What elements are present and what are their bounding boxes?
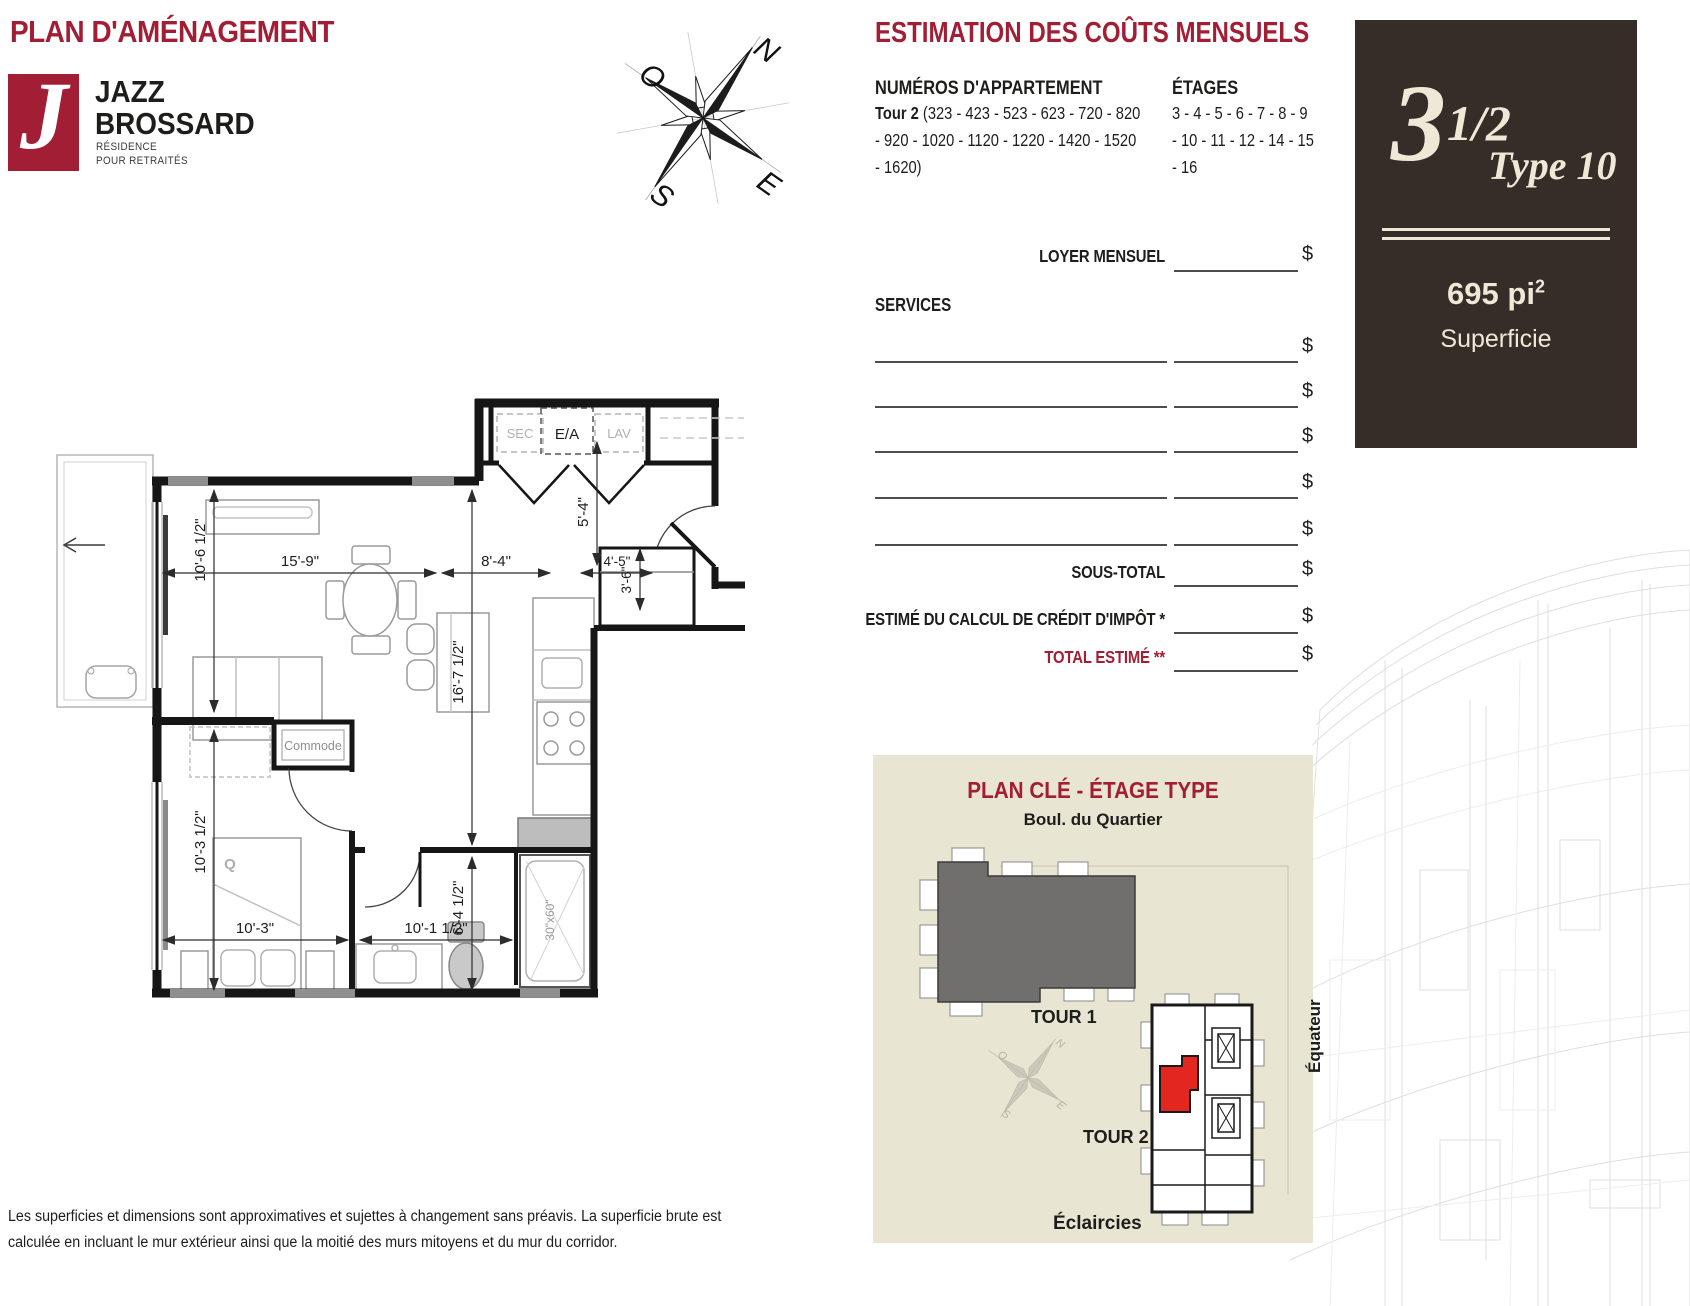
total-estime-label: TOTAL ESTIMÉ ** <box>910 647 1165 668</box>
disclaimer: Les superficies et dimensions sont appro… <box>8 1204 721 1255</box>
brochure-page: PLAN D'AMÉNAGEMENT J JAZZ BROSSARD RÉSID… <box>0 0 1690 1306</box>
compass-south-label: S <box>644 177 679 210</box>
estimation-title: ESTIMATION DES COÛTS MENSUELS <box>875 17 1309 50</box>
apartments-heading: NUMÉROS D'APPARTEMENT <box>875 77 1102 100</box>
tower2-building <box>1141 994 1264 1225</box>
service-name-line-4[interactable] <box>875 477 1167 499</box>
credit-impot-label: ESTIMÉ DU CALCUL DE CRÉDIT D'IMPÔT * <box>846 609 1165 630</box>
currency-sign: $ <box>1302 243 1313 266</box>
currency-sign: $ <box>1302 471 1313 494</box>
unit-area-label: Superficie <box>1355 325 1637 354</box>
street-boul-du-quartier: Boul. du Quartier <box>873 810 1313 830</box>
key-plan-title: PLAN CLÉ - ÉTAGE TYPE <box>895 777 1291 804</box>
service-name-line-3[interactable] <box>875 431 1167 453</box>
dim-entry-depth: 3'-6" <box>619 566 634 593</box>
label-queen-bed: Q <box>224 856 236 873</box>
jazz-brossard-logo-icon: J <box>8 74 79 171</box>
logo-tagline-line1: RÉSIDENCE <box>96 141 157 153</box>
dim-living-height: 10'-6 1/2" <box>192 518 209 581</box>
sous-total-label: SOUS-TOTAL <box>910 562 1165 583</box>
currency-sign: $ <box>1302 380 1313 403</box>
balcony-exit-arrow-icon <box>64 538 105 552</box>
total-amount-line[interactable] <box>1174 650 1298 672</box>
service-amount-line-1[interactable] <box>1174 341 1298 363</box>
service-name-line-1[interactable] <box>875 341 1167 363</box>
compass-north-label: N <box>748 31 785 71</box>
logo-name-line2: BROSSARD <box>95 108 255 139</box>
apartments-line-2: - 920 - 1020 - 1120 - 1220 - 1420 - 1520 <box>875 130 1136 151</box>
card-divider <box>1382 228 1610 240</box>
dim-hall-depth: 5'-4" <box>575 497 592 527</box>
unit-size-fraction: 1/2 <box>1447 98 1511 148</box>
unit-type-card: 3 1/2 Type 10 695 pi2 Superficie <box>1355 20 1637 448</box>
unit-type-label: Type 10 <box>1488 146 1616 186</box>
logo-name-line1: JAZZ <box>95 76 165 107</box>
floors-heading: ÉTAGES <box>1172 77 1238 100</box>
service-name-line-2[interactable] <box>875 386 1167 408</box>
floors-line-1: 3 - 4 - 5 - 6 - 7 - 8 - 9 <box>1172 103 1308 124</box>
tower1-label: TOUR 1 <box>1031 1007 1097 1028</box>
balcony <box>57 455 153 707</box>
floors-line-2: - 10 - 11 - 12 - 14 - 15 <box>1172 130 1314 151</box>
loyer-amount-line[interactable] <box>1174 250 1298 272</box>
apartments-line-3: - 1620) <box>875 157 922 178</box>
dim-bedroom-width: 10'-3" <box>236 920 274 937</box>
tower1-building <box>920 848 1135 1016</box>
logo-glyph: J <box>20 60 68 171</box>
unit-size-number: 3 <box>1391 68 1446 178</box>
sous-total-amount-line[interactable] <box>1174 565 1298 587</box>
key-compass-east: E <box>1054 1099 1067 1113</box>
street-eclaircies: Éclaircies <box>1053 1213 1142 1235</box>
service-amount-line-2[interactable] <box>1174 386 1298 408</box>
logo-tagline-line2: POUR RETRAITÉS <box>96 155 188 167</box>
key-compass-south: S <box>999 1108 1012 1122</box>
disclaimer-line-2: calculée en incluant le mur extérieur ai… <box>8 1230 721 1256</box>
label-commode: Commode <box>284 739 342 753</box>
tower-label: Tour 2 <box>875 103 919 123</box>
dim-tub-size: 30"x60" <box>543 899 557 940</box>
service-amount-line-4[interactable] <box>1174 477 1298 499</box>
background-architectural-wireframe <box>1290 540 1690 1306</box>
service-amount-line-3[interactable] <box>1174 431 1298 453</box>
currency-sign: $ <box>1302 425 1313 448</box>
label-dryer: SEC <box>507 426 534 441</box>
unit-area-exponent: 2 <box>1535 277 1545 297</box>
floors-line-3: - 16 <box>1172 157 1197 178</box>
service-amount-line-5[interactable] <box>1174 524 1298 546</box>
compass-east-label: E <box>751 165 787 204</box>
label-washer: LAV <box>607 426 631 441</box>
tower2-label: TOUR 2 <box>1083 1127 1149 1148</box>
currency-sign: $ <box>1302 518 1313 541</box>
currency-sign: $ <box>1302 605 1313 628</box>
compass-rose-icon: N O S E <box>590 10 800 210</box>
apartments-line-1: Tour 2 (323 - 423 - 523 - 623 - 720 - 82… <box>875 103 1140 124</box>
street-equateur: Équateur <box>1305 999 1325 1073</box>
key-plan-compass-icon <box>961 1011 1095 1145</box>
unit-area: 695 pi2 <box>1355 276 1637 312</box>
disclaimer-line-1: Les superficies et dimensions sont appro… <box>8 1204 721 1230</box>
currency-sign: $ <box>1302 558 1313 581</box>
currency-sign: $ <box>1302 643 1313 666</box>
service-name-line-5[interactable] <box>875 524 1167 546</box>
credit-impot-amount-line[interactable] <box>1174 612 1298 634</box>
page-title: PLAN D'AMÉNAGEMENT <box>10 14 334 50</box>
currency-sign: $ <box>1302 335 1313 358</box>
dim-unit-depth: 16'-7 1/2" <box>450 640 467 703</box>
dim-bedroom-height: 10'-3 1/2" <box>192 810 209 873</box>
key-plan-panel: N O S E <box>873 755 1313 1243</box>
dim-bathroom-width: 10'-1 1/2" <box>404 920 467 937</box>
dim-living-width: 15'-9" <box>281 553 319 570</box>
loyer-label: LOYER MENSUEL <box>944 246 1165 267</box>
services-heading: SERVICES <box>875 295 951 316</box>
dim-kitchen-width: 8'-4" <box>481 553 511 570</box>
label-entry-appliances: E/A <box>555 426 579 443</box>
floor-plan: 15'-9" 8'-4" 4'-5" 10'-6 1/2" 10'-3 1/2"… <box>40 340 750 1020</box>
apartments-numbers-1: (323 - 423 - 523 - 623 - 720 - 820 <box>923 103 1140 123</box>
